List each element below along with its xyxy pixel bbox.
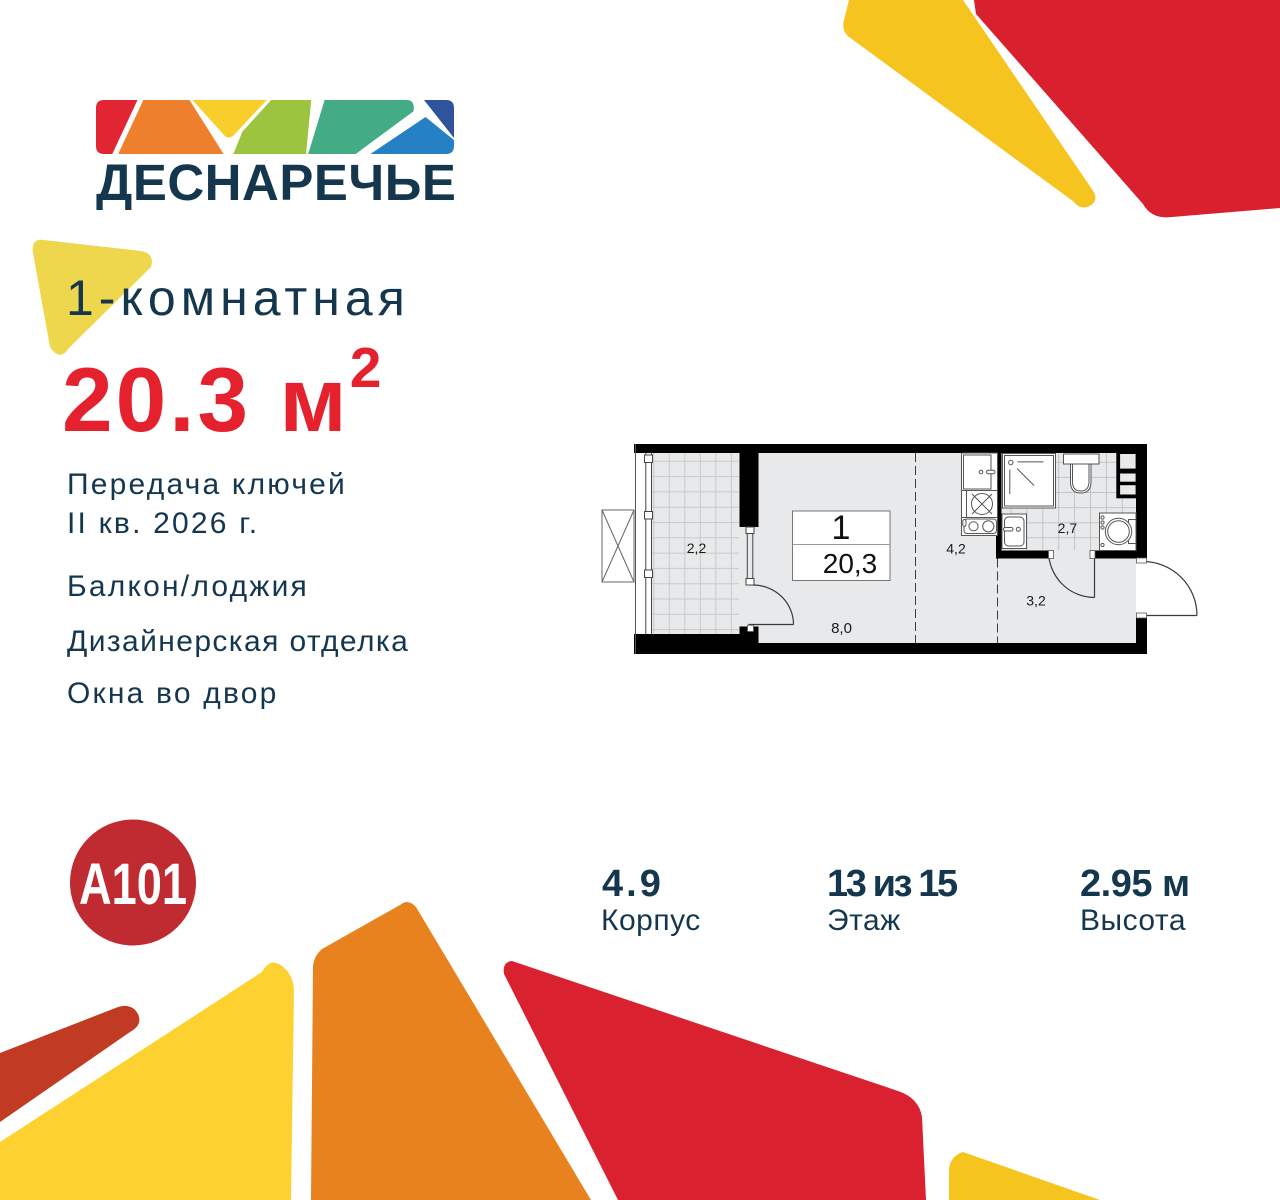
svg-text:3,2: 3,2 — [1026, 592, 1046, 608]
svg-text:8,0: 8,0 — [831, 620, 852, 637]
svg-text:A101: A101 — [79, 852, 187, 917]
svg-text:4,2: 4,2 — [946, 541, 966, 557]
svg-text:20,3: 20,3 — [823, 548, 878, 579]
svg-text:1: 1 — [832, 509, 851, 547]
svg-text:2,2: 2,2 — [687, 540, 707, 556]
svg-text:2,7: 2,7 — [1058, 520, 1078, 536]
